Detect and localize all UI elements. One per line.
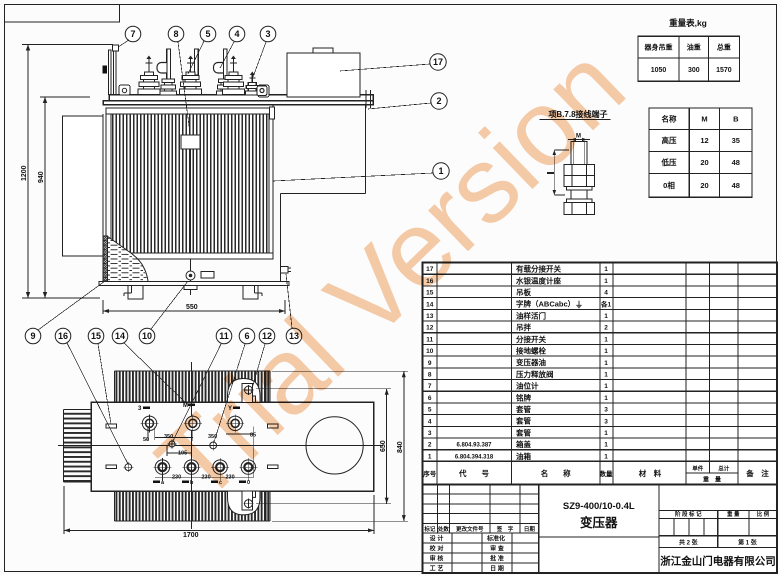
svg-text:10: 10	[426, 348, 434, 355]
svg-text:重量表,kg: 重量表,kg	[669, 18, 707, 28]
svg-text:数量: 数量	[600, 469, 614, 478]
svg-text:备 注: 备 注	[745, 468, 769, 478]
svg-text:14: 14	[115, 331, 125, 341]
svg-text:B: B	[733, 114, 739, 123]
svg-text:7: 7	[428, 383, 432, 390]
svg-text:48: 48	[732, 158, 740, 167]
svg-text:3: 3	[428, 430, 432, 437]
svg-text:压力释放阀: 压力释放阀	[516, 369, 554, 379]
svg-text:低压: 低压	[661, 157, 677, 167]
svg-text:标准化: 标准化	[486, 535, 505, 543]
svg-text:总重: 总重	[717, 43, 731, 52]
svg-text:1200: 1200	[21, 165, 28, 181]
svg-text:20: 20	[700, 181, 708, 190]
svg-text:940: 940	[38, 171, 45, 183]
svg-text:48: 48	[732, 181, 740, 190]
svg-text:分接开关: 分接开关	[516, 334, 546, 344]
svg-text:名称: 名称	[662, 113, 677, 123]
svg-text:300: 300	[688, 67, 700, 74]
svg-text:1: 1	[604, 430, 608, 437]
svg-text:1: 1	[604, 336, 608, 343]
svg-text:15: 15	[91, 331, 101, 341]
svg-text:代 号: 代 号	[458, 468, 489, 478]
svg-text:6.804.93.387: 6.804.93.387	[456, 443, 492, 449]
svg-text:油重: 油重	[687, 43, 701, 52]
svg-text:标记: 标记	[423, 525, 436, 533]
svg-text:器身吊重: 器身吊重	[644, 43, 673, 52]
svg-text:4: 4	[604, 290, 608, 297]
svg-text:2: 2	[604, 325, 608, 332]
svg-text:处数: 处数	[437, 525, 450, 533]
svg-text:高压: 高压	[662, 135, 677, 145]
svg-text:8: 8	[428, 372, 432, 379]
svg-text:序号: 序号	[422, 469, 437, 478]
svg-text:11: 11	[426, 336, 433, 343]
svg-text:16: 16	[58, 331, 68, 341]
svg-text:1050: 1050	[651, 67, 667, 74]
svg-text:有载分接开关: 有载分接开关	[516, 264, 561, 274]
svg-text:更改文件号: 更改文件号	[456, 525, 484, 533]
svg-text:1: 1	[604, 442, 608, 449]
svg-text:1: 1	[604, 360, 608, 367]
svg-text:M: M	[701, 114, 707, 123]
svg-text:日期: 日期	[524, 525, 536, 533]
svg-text:3: 3	[604, 418, 608, 425]
svg-text:840: 840	[397, 441, 404, 453]
svg-text:套管: 套管	[516, 427, 531, 437]
svg-text:浙江金山门电器有限公司: 浙江金山门电器有限公司	[660, 555, 776, 568]
svg-text:共 2 张: 共 2 张	[679, 538, 699, 546]
svg-text:材 料: 材 料	[639, 468, 662, 478]
svg-text:5: 5	[205, 29, 210, 39]
svg-text:重 量: 重 量	[727, 510, 740, 518]
svg-text:阶 段 标 记: 阶 段 标 记	[675, 510, 702, 518]
svg-text:批 准: 批 准	[490, 555, 504, 563]
svg-text:套管: 套管	[516, 416, 531, 426]
svg-text:650: 650	[380, 440, 387, 452]
svg-text:12: 12	[700, 136, 708, 145]
svg-text:水银温度计座: 水银温度计座	[516, 275, 561, 285]
svg-text:35: 35	[732, 136, 740, 145]
svg-text:重 量: 重 量	[703, 476, 721, 484]
svg-text:4: 4	[428, 418, 432, 425]
svg-text:总计: 总计	[718, 465, 730, 473]
svg-text:签 字: 签 字	[496, 525, 514, 533]
svg-text:油样活门: 油样活门	[516, 310, 546, 320]
svg-text:变压器油: 变压器油	[516, 357, 546, 367]
svg-text:⏚: ⏚	[575, 301, 583, 310]
svg-text:变压器: 变压器	[580, 515, 618, 530]
svg-text:审 查: 审 查	[490, 545, 504, 553]
svg-text:8: 8	[173, 29, 178, 39]
svg-text:箱盖: 箱盖	[516, 439, 531, 449]
svg-text:名 称: 名 称	[541, 468, 571, 478]
svg-text:12: 12	[426, 325, 434, 332]
svg-text:校 对: 校 对	[430, 545, 444, 553]
svg-text:1: 1	[604, 348, 608, 355]
svg-text:10: 10	[142, 331, 152, 341]
svg-text:吊拌: 吊拌	[516, 322, 531, 332]
svg-text:1570: 1570	[716, 67, 732, 74]
svg-text:2: 2	[428, 442, 432, 449]
svg-text:吊板: 吊板	[516, 287, 531, 297]
svg-text:6.804.394.318: 6.804.394.318	[455, 454, 494, 460]
svg-text:工 艺: 工 艺	[430, 565, 444, 573]
svg-text:各1: 各1	[600, 299, 612, 308]
svg-text:550: 550	[186, 304, 198, 311]
svg-text:第 1 张: 第 1 张	[737, 538, 758, 546]
svg-text:9: 9	[30, 331, 35, 341]
svg-text:1: 1	[604, 313, 608, 320]
svg-text:1: 1	[428, 453, 432, 460]
svg-text:铭牌: 铭牌	[516, 392, 531, 402]
svg-text:SZ9-400/10-0.4L: SZ9-400/10-0.4L	[563, 501, 635, 512]
svg-text:6: 6	[428, 395, 432, 402]
svg-text:单件: 单件	[692, 465, 704, 473]
svg-text:比 例: 比 例	[757, 510, 770, 518]
svg-text:0相: 0相	[663, 180, 675, 190]
svg-text:套管: 套管	[516, 404, 531, 414]
svg-text:20: 20	[700, 158, 708, 167]
svg-text:1: 1	[604, 453, 608, 460]
svg-text:审 核: 审 核	[430, 555, 444, 563]
svg-text:1: 1	[604, 395, 608, 402]
svg-text:3: 3	[604, 407, 608, 414]
svg-text:7: 7	[130, 29, 135, 39]
svg-text:1: 1	[604, 278, 608, 285]
svg-text:5: 5	[428, 407, 432, 414]
svg-text:设 计: 设 计	[430, 535, 444, 543]
svg-text:17: 17	[433, 57, 443, 67]
svg-text:字牌（ABCabc）: 字牌（ABCabc）	[516, 299, 575, 309]
svg-text:4: 4	[234, 29, 239, 39]
svg-text:1: 1	[604, 383, 608, 390]
svg-text:日 期: 日 期	[490, 565, 504, 573]
svg-text:3: 3	[265, 29, 270, 39]
svg-text:2: 2	[436, 96, 441, 106]
svg-text:11: 11	[219, 331, 229, 341]
svg-text:油位计: 油位计	[516, 381, 539, 391]
svg-text:1: 1	[604, 372, 608, 379]
svg-text:接地螺栓: 接地螺栓	[516, 346, 546, 356]
svg-text:9: 9	[428, 360, 432, 367]
svg-text:1700: 1700	[183, 532, 199, 539]
svg-text:油箱: 油箱	[516, 451, 531, 461]
svg-text:1: 1	[604, 266, 608, 273]
